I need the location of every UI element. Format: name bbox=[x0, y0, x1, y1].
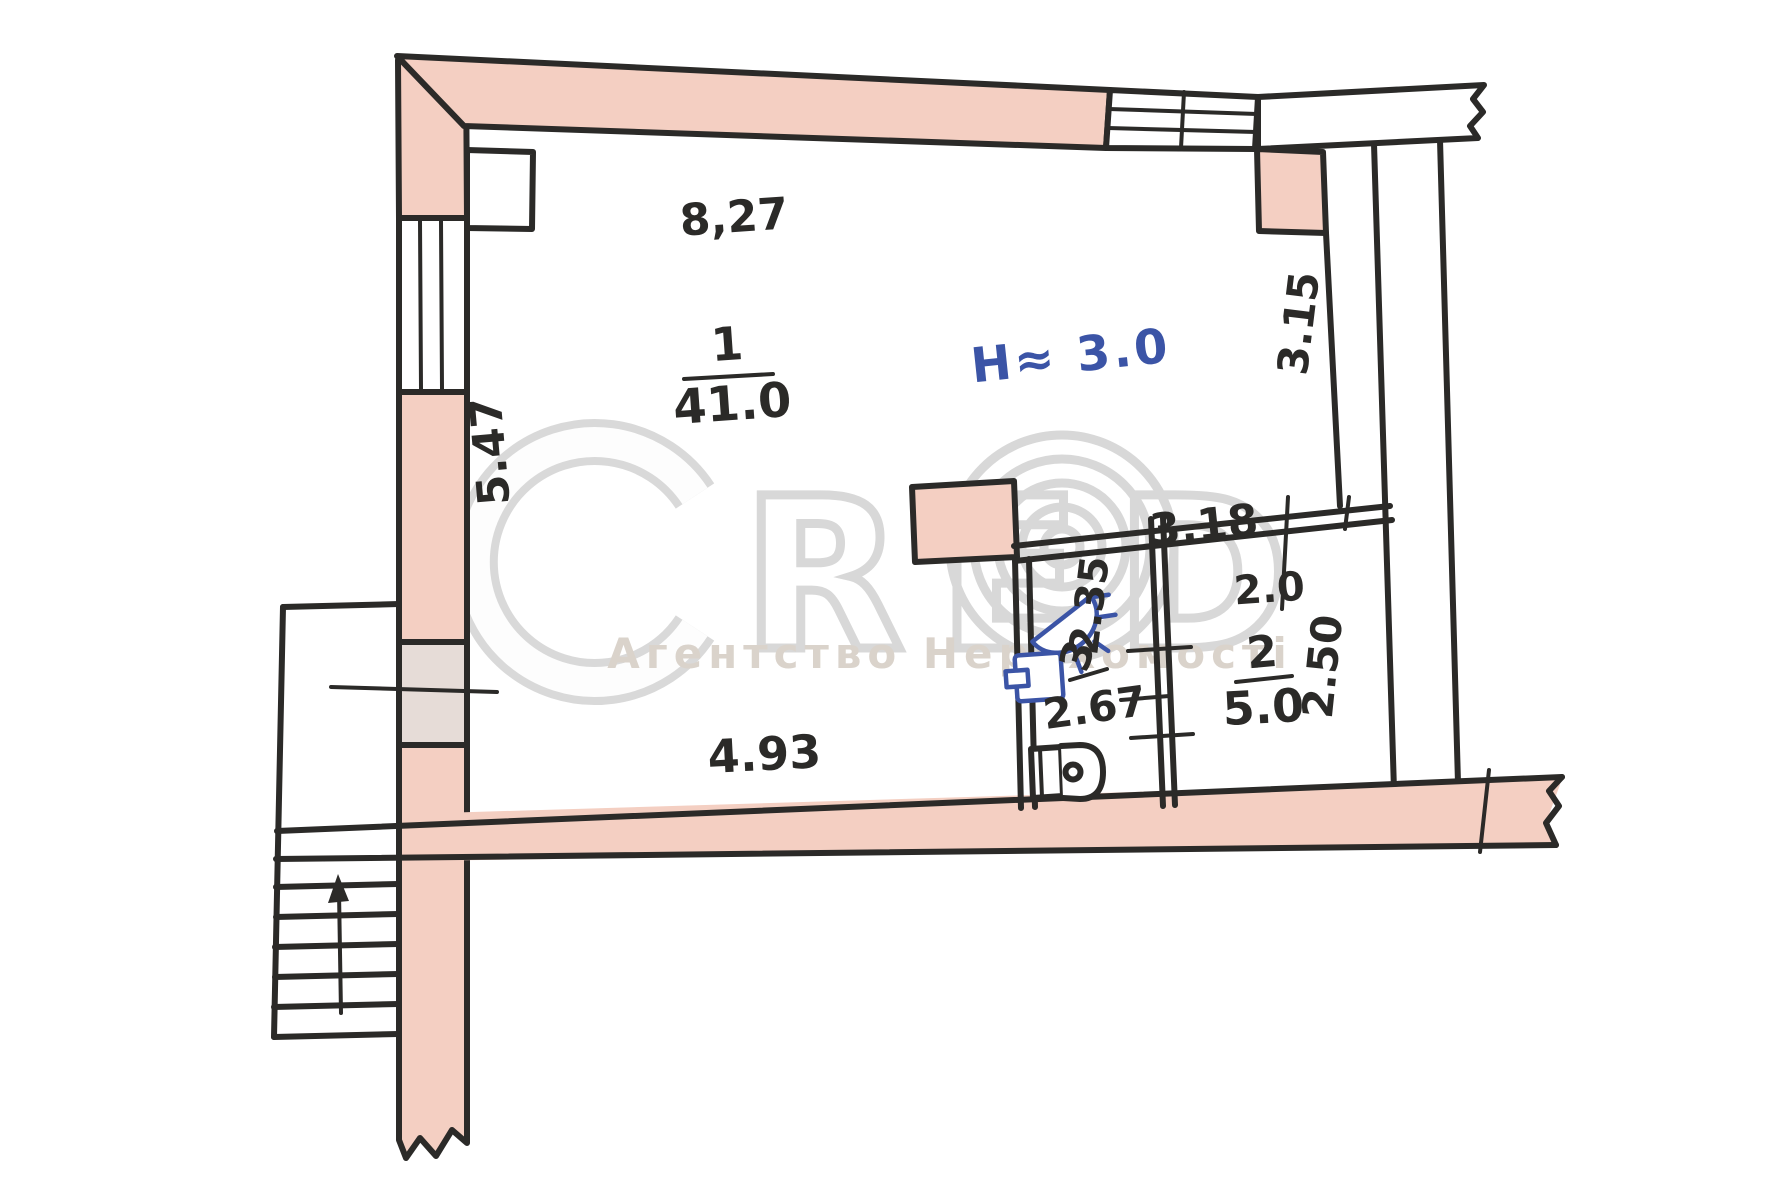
pilaster-top-left bbox=[467, 150, 533, 229]
window-top-right bbox=[1106, 90, 1258, 149]
dimension-tick-left-wall bbox=[331, 687, 497, 692]
watermark-subtitle: Агентство Нерухомості bbox=[607, 629, 1292, 678]
wall-left-lower bbox=[399, 745, 467, 1158]
room-1-number: 1 bbox=[709, 316, 745, 372]
window-left-lower bbox=[399, 642, 467, 745]
dimension-opening-width: 2.0 bbox=[1232, 564, 1306, 615]
wall-left-middle bbox=[399, 392, 467, 642]
height-note: H≈ 3.0 bbox=[968, 318, 1173, 395]
dimension-bottom-width: 4.93 bbox=[706, 724, 822, 784]
pier-central bbox=[912, 481, 1017, 562]
room-1-area: 41.0 bbox=[671, 372, 793, 436]
toilet-icon bbox=[1031, 745, 1103, 799]
room-2-number: 2 bbox=[1245, 626, 1280, 679]
dimension-top-width: 8,27 bbox=[678, 188, 790, 246]
floor-plan-scan: RED Агентство Нерухомості bbox=[0, 0, 1772, 1181]
dimension-left-height: 5.47 bbox=[460, 395, 520, 508]
watermark-logo: RED Агентство Нерухомості bbox=[475, 435, 1324, 698]
wall-right bbox=[1326, 140, 1458, 790]
wall-top bbox=[397, 56, 1110, 148]
dimension-room2-depth: 2.50 bbox=[1293, 612, 1353, 720]
stairs bbox=[274, 604, 399, 1037]
wall-top-right-continuation bbox=[1258, 85, 1484, 149]
dimension-right-upper: 3.15 bbox=[1268, 269, 1329, 378]
window-left-upper bbox=[399, 218, 467, 392]
pier-top-right bbox=[1257, 149, 1326, 233]
